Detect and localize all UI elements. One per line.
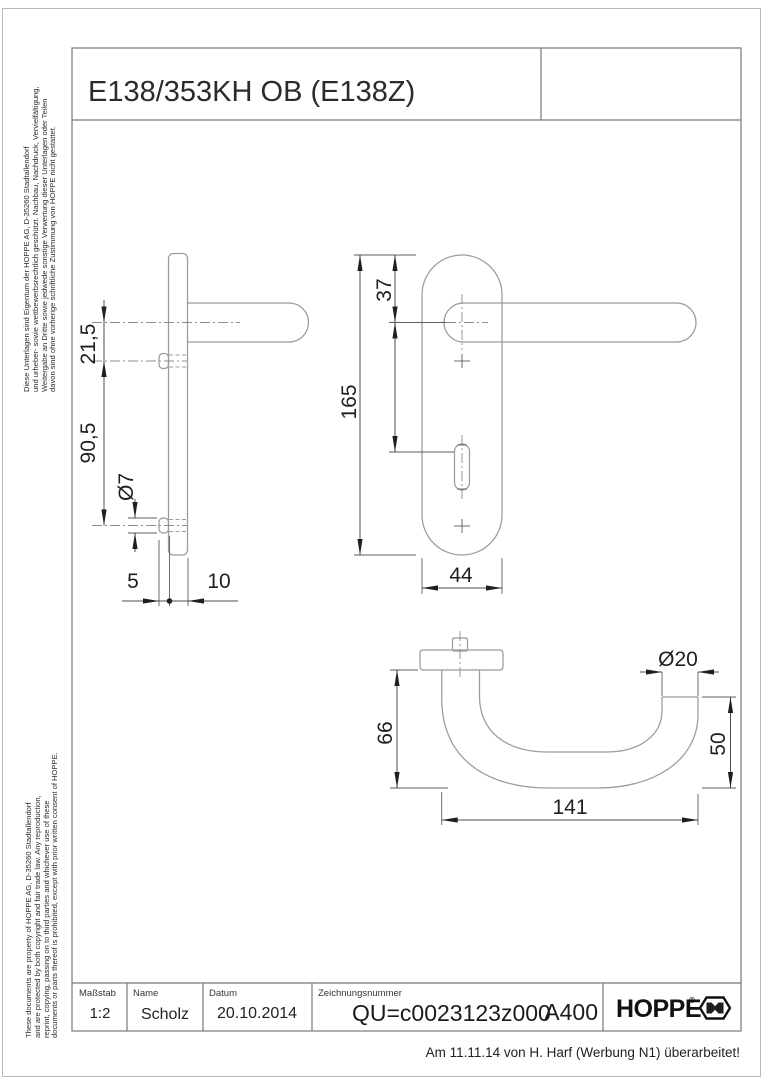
drawing-number-value: QU=c0023123z000 [352,1000,551,1026]
dim-label-grip-depth: 50 [707,732,730,755]
hoppe-logo: HOPPE ® [616,995,730,1023]
format-code: A400 [544,999,598,1025]
arrowhead [394,772,399,788]
arrowhead [101,361,106,377]
scale-value: 1:2 [90,1005,111,1022]
front-view: 165 37 44 [338,255,696,594]
arrowhead [132,502,137,518]
date-value: 20.10.2014 [217,1005,297,1022]
page-title: E138/353KH OB (E138Z) [88,76,415,108]
dim-label-plate-depth: 10 [207,570,230,593]
fixing-cross-upper [454,354,470,368]
lever-inner-curve [480,670,663,752]
side-view: 21,5 90,5 Ø7 5 10 [77,254,309,607]
date-label: Datum [209,988,237,999]
arrowhead [682,817,698,822]
arrowhead [392,255,397,271]
dim-label-hole-dia: Ø7 [115,473,138,501]
drawing-sheet: Diese Unterlagen sind Eigentum der HOPPE… [0,0,763,1080]
arrowhead [394,670,399,686]
arrowhead [357,539,362,555]
double-arrow-logo-icon [707,1003,724,1014]
name-label: Name [133,988,158,999]
backplate-side-outline [169,254,188,556]
scale-label: Maßstab [79,988,116,999]
dim-label-depth: 66 [374,721,397,744]
drawing-frame [72,48,741,1031]
technical-drawing-canvas: E138/353KH OB (E138Z) 21,5 90,5 [0,0,763,1080]
drawing-number-label: Zeichnungsnummer [318,988,402,999]
registered-trademark-icon: ® [689,996,695,1005]
arrowhead [442,817,458,822]
arrowhead [188,598,204,603]
arrowhead [101,307,106,323]
dim-label-plate-height: 165 [338,384,361,419]
arrowhead [422,585,438,590]
dim-label-hole-spacing: 90,5 [77,423,100,464]
arrowhead [486,585,502,590]
top-view: 66 141 Ø20 50 [374,631,736,825]
arrowhead [143,598,159,603]
arrowhead [392,307,397,323]
lever-outer-curve [442,670,698,788]
arrowhead [357,255,362,271]
title-block: Maßstab 1:2 Name Scholz Datum 20.10.2014… [72,983,741,1031]
arrowhead [698,669,714,674]
dim-label-top-to-center: 37 [373,278,396,301]
dimension-dot [167,598,173,604]
arrowhead [101,510,106,526]
rose-outline [420,650,503,670]
arrowhead [392,323,397,339]
lever-front-outline [444,303,696,342]
dim-label-plate-width: 44 [449,564,473,587]
arrowhead [728,697,733,713]
sheet-frame [3,9,761,1077]
page-border [3,9,761,1077]
dim-label-length: 141 [552,796,587,819]
name-value: Scholz [141,1006,189,1023]
arrowhead [132,533,137,549]
revision-note: Am 11.11.14 von H. Harf (Werbung N1) übe… [426,1045,740,1060]
fixing-cross-lower [454,519,470,533]
dim-label-offset-top: 21,5 [77,324,100,365]
dim-label-grip-dia: Ø20 [658,648,698,671]
dim-label-boss-depth: 5 [127,570,139,593]
arrowhead [728,772,733,788]
arrowhead [392,436,397,452]
